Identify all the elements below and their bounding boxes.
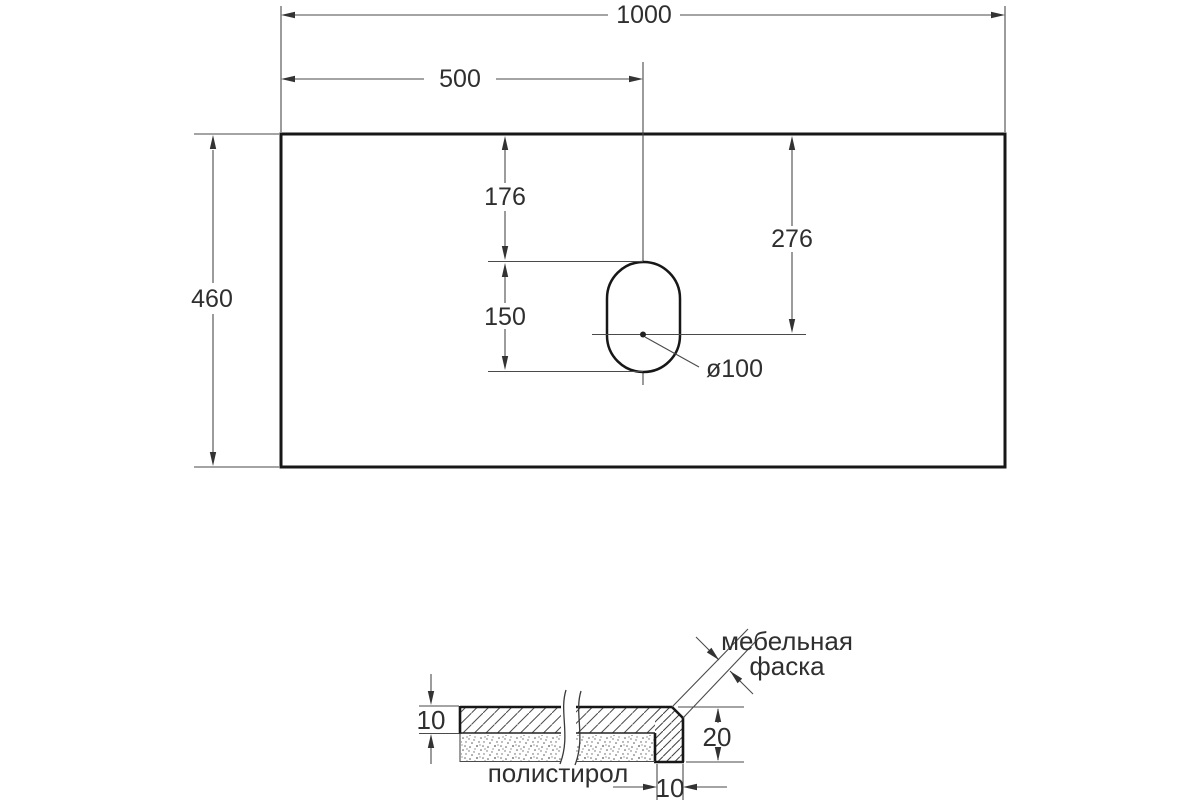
dim-hole-center-offset-label: 276: [771, 225, 813, 253]
chamfer-callout: мебельная фаска: [672, 626, 853, 718]
dim-edge-width-label: 10: [656, 773, 685, 800]
dimension-plate-width: 1000: [281, 1, 1005, 29]
hole-center-dot: [640, 332, 646, 338]
dimension-top-thickness: 10: [417, 674, 459, 764]
worktop-section-hatch-right: [576, 707, 655, 733]
dim-plate-depth-label: 460: [191, 285, 233, 313]
dimension-hole-center-x: 500: [281, 65, 643, 93]
dim-plate-width-label: 1000: [616, 1, 672, 29]
dim-hole-diameter-label: ø100: [706, 355, 763, 383]
drawing-canvas: 1000 500 460 176: [0, 0, 1200, 800]
technical-drawing: 1000 500 460 176: [0, 0, 1200, 800]
sink-hole-cutout: [607, 262, 680, 372]
dim-edge-height-label: 20: [703, 722, 732, 752]
section-view: 10 20 10: [417, 626, 853, 800]
dimension-edge-width: 10: [613, 764, 727, 800]
dim-hole-length-label: 150: [484, 303, 526, 331]
worktop-section-hatch-left: [460, 707, 561, 733]
dim-top-thickness-label: 10: [417, 705, 446, 735]
top-view: 1000 500 460 176: [191, 1, 1005, 467]
filler-label: полистирол: [488, 758, 629, 788]
dimension-edge-height: 20: [678, 707, 744, 762]
dim-hole-top-offset-label: 176: [484, 183, 526, 211]
dim-hole-center-x-label: 500: [439, 65, 481, 93]
dimension-plate-depth: 460: [191, 135, 233, 466]
chamfer-label-line2: фаска: [749, 651, 825, 681]
